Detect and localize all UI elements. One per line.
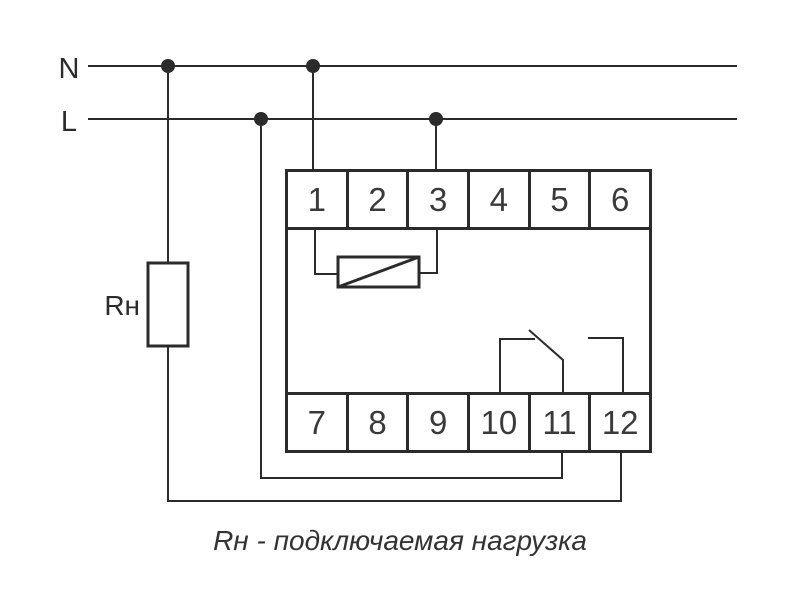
device-body	[285, 230, 652, 392]
neutral-label: N	[52, 55, 86, 84]
junction-dot	[254, 112, 268, 126]
terminal-6: 6	[591, 172, 649, 227]
phase-label: L	[52, 108, 86, 137]
terminal-row-bottom: 7 8 9 10 11 12	[285, 392, 652, 453]
terminal-4: 4	[470, 172, 531, 227]
junction-dot	[161, 59, 175, 73]
wiring-diagram: N L Rн 1 2 3 4 5 6 7 8 9 10 11 12 Rн - п…	[0, 0, 800, 612]
load-resistor-symbol	[148, 263, 188, 346]
terminal-row-top: 1 2 3 4 5 6	[285, 169, 652, 230]
terminal-7: 7	[288, 395, 349, 450]
terminal-9: 9	[409, 395, 470, 450]
terminal-3: 3	[409, 172, 470, 227]
terminal-10: 10	[470, 395, 531, 450]
terminal-11: 11	[531, 395, 592, 450]
terminal-12: 12	[591, 395, 649, 450]
junction-dot	[306, 59, 320, 73]
diagram-caption: Rн - подключаемая нагрузка	[0, 524, 800, 558]
junction-dot	[429, 112, 443, 126]
terminal-8: 8	[349, 395, 410, 450]
load-label: Rн	[88, 292, 140, 320]
terminal-2: 2	[349, 172, 410, 227]
terminal-1: 1	[288, 172, 349, 227]
terminal-5: 5	[531, 172, 592, 227]
